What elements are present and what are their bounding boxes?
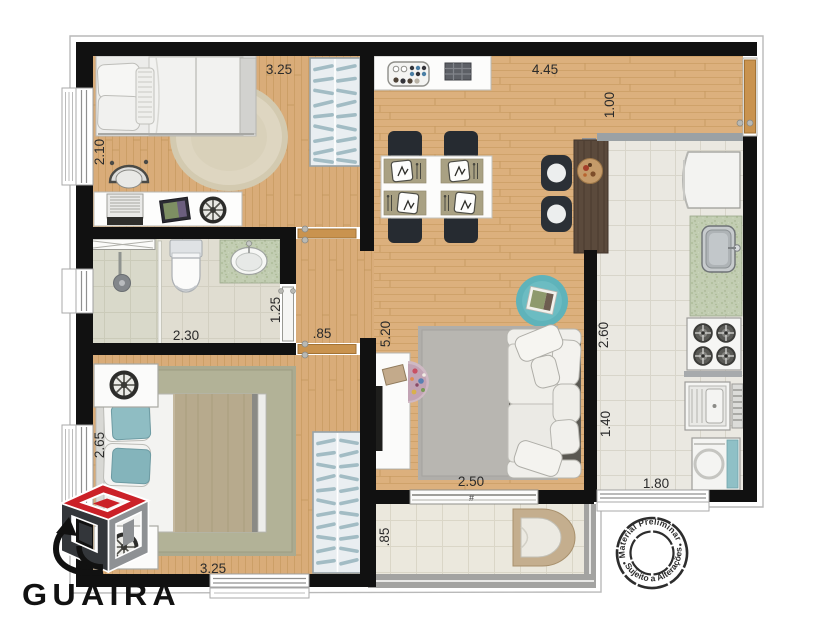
svg-text:2.50: 2.50 bbox=[458, 474, 484, 489]
svg-text:.85: .85 bbox=[313, 326, 332, 341]
svg-text:2.10: 2.10 bbox=[92, 139, 107, 165]
svg-text:3.25: 3.25 bbox=[266, 62, 292, 77]
svg-text:GUAÍRA: GUAÍRA bbox=[22, 577, 181, 612]
svg-text:4.45: 4.45 bbox=[532, 62, 558, 77]
svg-text:2.65: 2.65 bbox=[92, 432, 107, 458]
svg-text:2.60: 2.60 bbox=[596, 322, 611, 348]
svg-text:2.30: 2.30 bbox=[173, 328, 199, 343]
svg-text:5.20: 5.20 bbox=[378, 321, 393, 347]
svg-text:1.00: 1.00 bbox=[602, 92, 617, 118]
svg-text:#: # bbox=[469, 493, 474, 503]
svg-text:1.80: 1.80 bbox=[643, 476, 669, 491]
svg-text:1.25: 1.25 bbox=[268, 297, 283, 323]
svg-text:.85: .85 bbox=[377, 528, 392, 547]
svg-text:3.25: 3.25 bbox=[200, 561, 226, 576]
svg-text:1.40: 1.40 bbox=[598, 411, 613, 437]
